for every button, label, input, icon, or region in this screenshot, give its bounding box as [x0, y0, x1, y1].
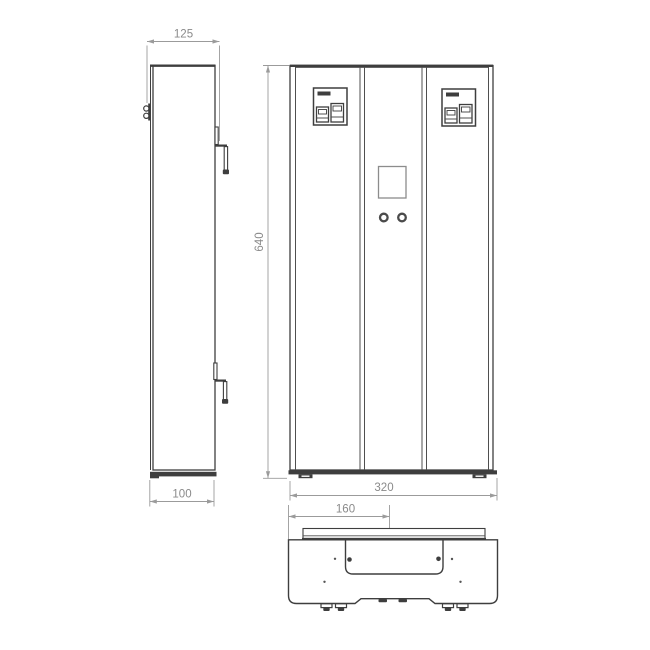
bracket-foot [223, 170, 229, 175]
wall-bracket-upper [215, 127, 229, 174]
arrow-icon [383, 514, 390, 518]
screw-icon [144, 106, 149, 111]
mounting-screws [144, 104, 151, 121]
hole-dot [334, 558, 336, 560]
bracket-back-bar [214, 363, 217, 380]
dim-width-half-label: 160 [336, 504, 355, 516]
front-base-strip [289, 470, 498, 474]
cable-gland [399, 599, 408, 602]
side-base-strip [150, 472, 217, 477]
side-view: 125 100 [144, 29, 229, 507]
arrow-icon [289, 514, 296, 518]
breaker-label-bar [318, 92, 331, 96]
side-foot [150, 474, 159, 479]
hole-dot [451, 558, 453, 560]
back-plate [302, 529, 486, 540]
arrow-icon [213, 39, 220, 43]
side-body [153, 66, 215, 471]
pipe-fittings-left [321, 604, 347, 611]
dim-width: 320 [290, 478, 497, 501]
pipe-fitting [336, 604, 347, 611]
arrow-icon [147, 39, 154, 43]
bracket-back-bar [215, 127, 218, 145]
arrow-icon [207, 499, 214, 503]
breaker-switch-toggle [319, 110, 327, 115]
screw-icon [144, 113, 149, 118]
front-foot-right [473, 474, 487, 478]
bracket-foot [222, 399, 228, 404]
technical-drawing: 125 100 [0, 0, 650, 650]
hole-dot [323, 581, 325, 583]
knob-left [380, 214, 388, 222]
pipe-fitting [321, 604, 332, 611]
dim-depth-body-label: 100 [172, 489, 191, 501]
circuit-breaker-left [314, 88, 348, 125]
display-window [379, 167, 407, 199]
bottom-body [289, 540, 498, 604]
dim-depth-overall-label: 125 [174, 29, 193, 41]
breaker-label-bar [446, 93, 459, 97]
breaker-switch-toggle [462, 107, 471, 112]
bracket-hang-bar [223, 382, 226, 401]
dim-height-label: 640 [254, 232, 266, 251]
arrow-icon [290, 493, 297, 497]
breaker-switch-toggle [447, 111, 455, 116]
pipe-fitting [457, 604, 468, 611]
knob-right [398, 214, 406, 222]
pipe-fitting [443, 604, 454, 611]
dim-depth-body: 100 [150, 480, 214, 507]
circuit-breaker-right [442, 89, 476, 126]
cover-screw-icon [436, 557, 441, 562]
wall-bracket-lower [214, 363, 228, 404]
arrow-icon [150, 499, 157, 503]
pipe-fittings-right [443, 604, 469, 611]
bottom-view: 160 [289, 504, 498, 612]
hole-dot [459, 581, 461, 583]
front-view: 640 320 [254, 66, 497, 501]
front-foot-left [299, 474, 313, 478]
cable-gland [379, 599, 388, 602]
dim-height: 640 [254, 66, 289, 479]
breaker-switch-toggle [333, 106, 342, 111]
cover-screw-icon [347, 557, 352, 562]
dim-width-label: 320 [374, 482, 393, 494]
arrow-icon [490, 493, 497, 497]
back-plate-body [303, 529, 485, 539]
bracket-hang-bar [224, 147, 227, 171]
arrow-icon [266, 471, 270, 478]
arrow-icon [266, 66, 270, 73]
